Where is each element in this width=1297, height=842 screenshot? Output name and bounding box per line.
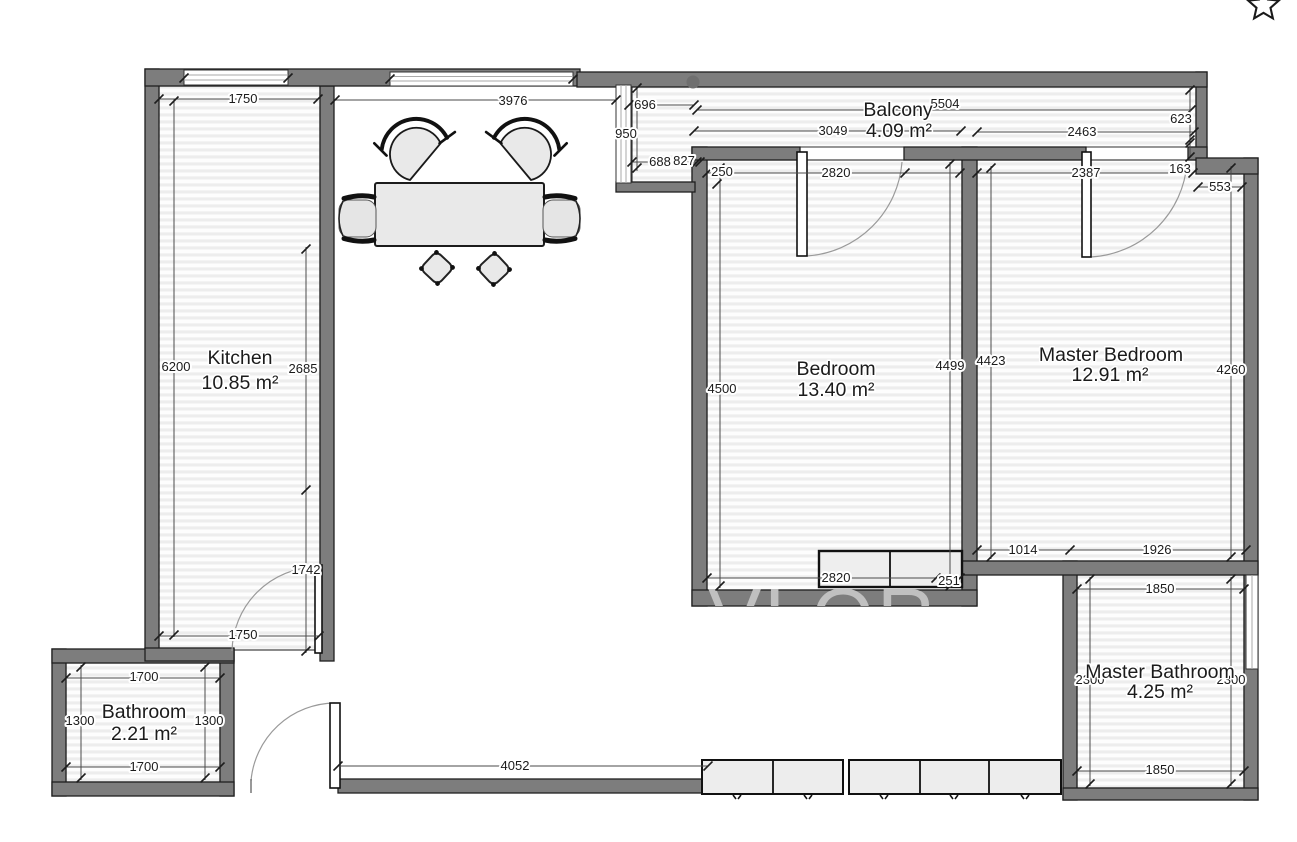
svg-text:12.91 m²: 12.91 m² xyxy=(1072,364,1149,386)
svg-text:4423: 4423 xyxy=(977,353,1006,368)
svg-text:4260: 4260 xyxy=(1217,362,1246,377)
svg-text:3049: 3049 xyxy=(819,123,848,138)
svg-text:1300: 1300 xyxy=(66,713,95,728)
svg-text:1850: 1850 xyxy=(1146,581,1175,596)
svg-text:688: 688 xyxy=(649,154,671,169)
svg-text:2820: 2820 xyxy=(822,165,851,180)
svg-text:2463: 2463 xyxy=(1068,124,1097,139)
svg-text:1926: 1926 xyxy=(1143,542,1172,557)
svg-text:827: 827 xyxy=(673,153,695,168)
svg-text:4500: 4500 xyxy=(708,381,737,396)
svg-text:4.25 m²: 4.25 m² xyxy=(1127,681,1194,703)
svg-text:Balcony: Balcony xyxy=(863,99,933,121)
svg-text:1300: 1300 xyxy=(195,713,224,728)
svg-text:623: 623 xyxy=(1170,111,1192,126)
svg-text:696: 696 xyxy=(634,97,656,112)
svg-text:1750: 1750 xyxy=(229,627,258,642)
svg-text:Kitchen: Kitchen xyxy=(207,347,272,369)
svg-text:6200: 6200 xyxy=(162,359,191,374)
svg-text:2387: 2387 xyxy=(1072,165,1101,180)
svg-text:2820: 2820 xyxy=(822,570,851,585)
svg-text:1742: 1742 xyxy=(292,562,321,577)
svg-text:553: 553 xyxy=(1209,179,1231,194)
svg-text:13.40 m²: 13.40 m² xyxy=(798,379,875,401)
svg-text:163: 163 xyxy=(1169,161,1191,176)
svg-text:10.85 m²: 10.85 m² xyxy=(202,372,279,394)
svg-text:1700: 1700 xyxy=(130,669,159,684)
svg-text:250: 250 xyxy=(711,164,733,179)
svg-text:Master Bedroom: Master Bedroom xyxy=(1039,344,1183,366)
svg-text:1700: 1700 xyxy=(130,759,159,774)
svg-text:1850: 1850 xyxy=(1146,762,1175,777)
svg-text:4.09 m²: 4.09 m² xyxy=(866,120,933,142)
svg-text:1014: 1014 xyxy=(1009,542,1038,557)
svg-text:950: 950 xyxy=(615,126,637,141)
svg-text:3976: 3976 xyxy=(499,93,528,108)
svg-text:4052: 4052 xyxy=(501,758,530,773)
svg-text:5504: 5504 xyxy=(931,96,960,111)
svg-text:2685: 2685 xyxy=(289,361,318,376)
svg-text:2.21 m²: 2.21 m² xyxy=(111,723,178,745)
svg-text:Bedroom: Bedroom xyxy=(796,358,875,380)
svg-text:4499: 4499 xyxy=(936,358,965,373)
svg-text:251: 251 xyxy=(938,573,960,588)
svg-text:1750: 1750 xyxy=(229,91,258,106)
svg-text:Bathroom: Bathroom xyxy=(102,701,187,723)
svg-text:Master Bathroom: Master Bathroom xyxy=(1085,661,1235,683)
